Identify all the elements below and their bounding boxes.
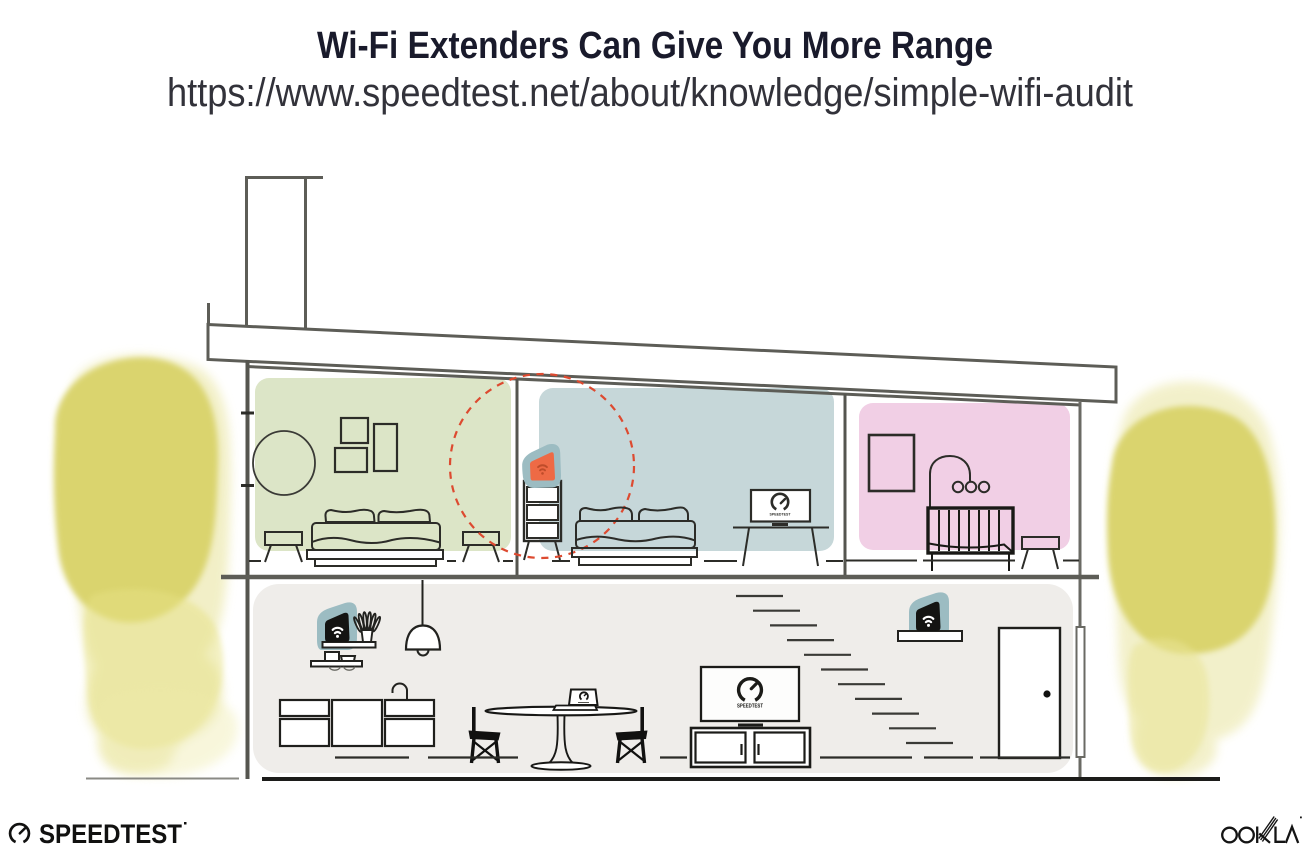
svg-text:Wi-Fi Extenders Can Give You M: Wi-Fi Extenders Can Give You More Range xyxy=(317,25,993,67)
svg-text:https://www.speedtest.net/abou: https://www.speedtest.net/about/knowledg… xyxy=(167,71,1133,115)
svg-text:SPEEDTEST: SPEEDTEST xyxy=(737,704,763,710)
svg-text:SPEEDTEST: SPEEDTEST xyxy=(39,819,182,849)
svg-text:SPEEDTEST: SPEEDTEST xyxy=(770,513,792,517)
